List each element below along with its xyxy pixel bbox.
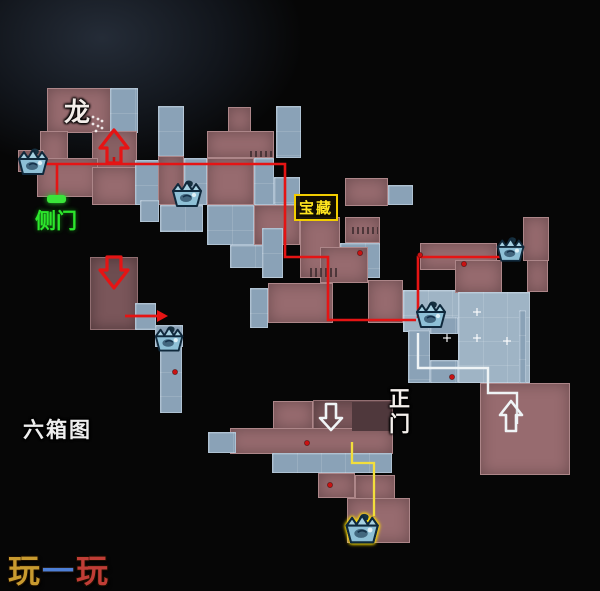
side-door-marker xyxy=(47,195,66,203)
red-dot xyxy=(449,374,454,379)
side-door-label: 侧门 xyxy=(35,205,77,235)
treasure-chest-icon xyxy=(19,149,47,175)
treasure-label: 宝藏 xyxy=(294,194,338,221)
logo-char-1: 玩 xyxy=(8,552,42,590)
map-overlay xyxy=(0,0,600,591)
stair-dot xyxy=(95,130,98,133)
red-down-arrow xyxy=(100,257,128,288)
red-up-arrow xyxy=(100,130,128,163)
red-dot xyxy=(461,261,466,266)
red-route-arrowhead xyxy=(157,310,168,322)
main-gate-label: 正 门 xyxy=(389,387,411,437)
red-dot xyxy=(417,252,422,257)
white-down-arrow xyxy=(320,404,342,430)
stair-dot xyxy=(92,116,95,119)
red-dot xyxy=(327,482,332,487)
stair-dot xyxy=(92,123,95,126)
treasure-chest-icon xyxy=(498,237,524,260)
floor-cross-mark xyxy=(443,334,451,342)
floor-cross-mark xyxy=(503,337,511,345)
treasure-chest-icon xyxy=(346,514,377,543)
dragon-label: 龙 xyxy=(64,92,92,129)
red-dot xyxy=(304,440,309,445)
treasure-map-screenshot: 龙 侧门 宝藏 正 门 六箱图 玩一玩 xyxy=(0,0,600,591)
route-red-main xyxy=(30,164,416,320)
floor-cross-mark xyxy=(473,308,481,316)
red-dot xyxy=(357,250,362,255)
stair-dot xyxy=(97,125,100,128)
stair-dot xyxy=(101,127,104,130)
six-chest-map-label: 六箱图 xyxy=(23,414,92,444)
white-up-arrow xyxy=(500,401,522,431)
logo-char-3: 玩 xyxy=(76,552,110,590)
treasure-chest-icon xyxy=(173,181,201,207)
route-yellow-route xyxy=(352,442,374,516)
floor-cross-mark xyxy=(473,334,481,342)
treasure-chest-icon xyxy=(156,326,183,350)
stair-dot xyxy=(97,118,100,121)
logo-char-2: 一 xyxy=(42,552,76,590)
site-logo: 玩一玩 xyxy=(8,546,110,591)
treasure-chest-icon xyxy=(417,302,445,328)
stair-dot xyxy=(101,120,104,123)
red-dot xyxy=(172,369,177,374)
